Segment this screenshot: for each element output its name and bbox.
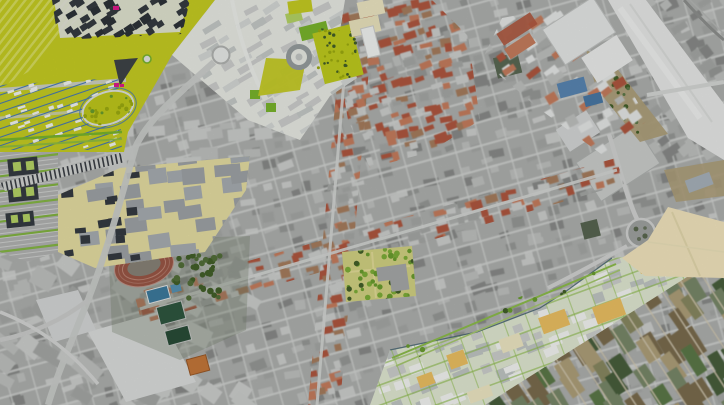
map-canvas	[0, 0, 724, 405]
masterplan-aerial-map	[0, 0, 724, 405]
photo-grain-overlay	[0, 0, 724, 405]
